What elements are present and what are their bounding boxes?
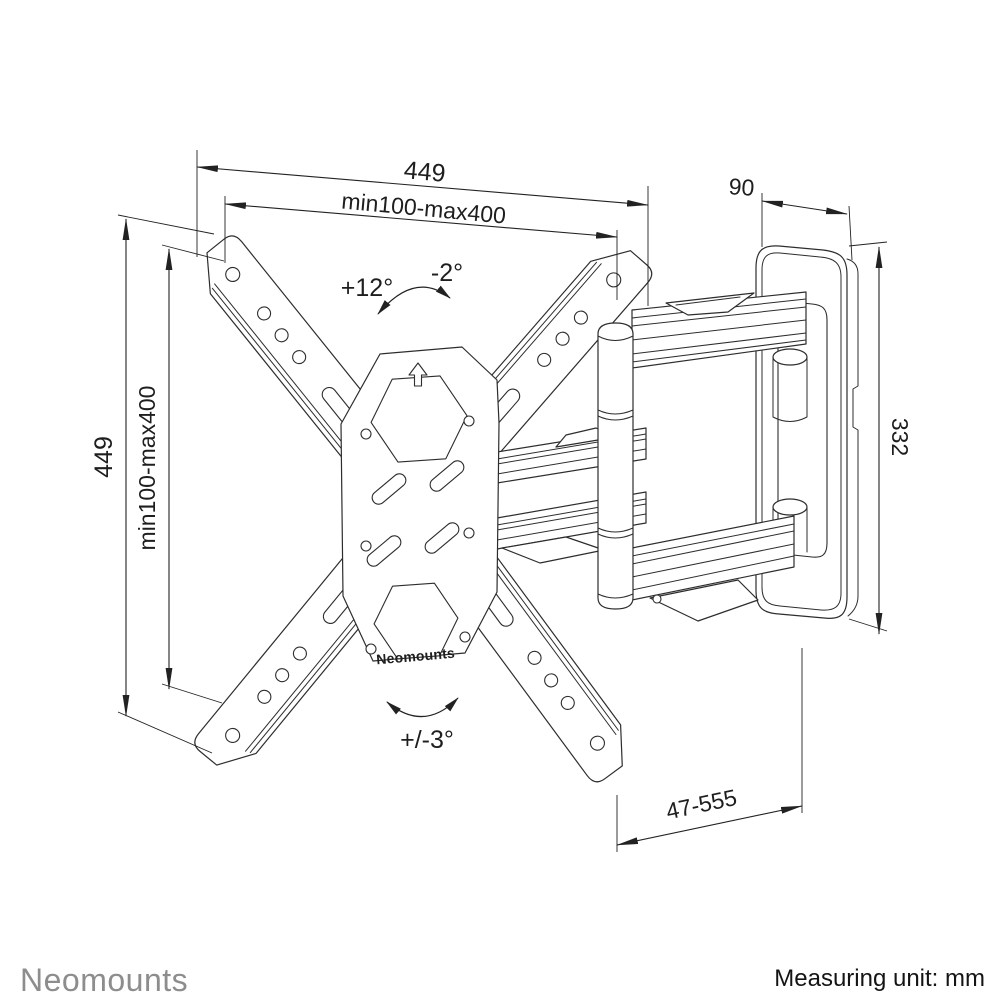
dimension-top-vesa: min100-max400 — [225, 187, 617, 300]
dimension-label-extension-range: 47-555 — [664, 784, 739, 824]
dimension-label-wall-plate-depth: 90 — [728, 173, 755, 201]
dimension-wall-plate-height: 332 — [849, 242, 913, 634]
dimension-label-left-height: 449 — [90, 436, 118, 478]
wall-mount-technical-drawing: Neomounts 449 — [0, 0, 1004, 1004]
hinge-column — [598, 323, 633, 609]
measuring-unit-note: Measuring unit: mm — [774, 965, 985, 992]
dimension-label-wall-plate-height: 332 — [887, 418, 913, 456]
dimension-label-left-vesa: min100-max400 — [134, 386, 160, 551]
vesa-center-plate: Neomounts — [341, 347, 499, 667]
brand-logo: Neomounts — [20, 962, 188, 998]
tilt-angle-callout: +12° -2° — [341, 259, 463, 314]
wall-plate-depth-edge — [847, 259, 858, 616]
angle-label-tilt-down: -2° — [431, 259, 463, 287]
angle-label-swivel: +/-3° — [400, 726, 454, 754]
dimension-left-vesa: min100-max400 — [134, 245, 224, 703]
technical-drawing-page: Neomounts 449 — [0, 0, 1004, 1004]
footer: Neomounts Measuring unit: mm — [20, 962, 985, 998]
dimension-label-top-vesa: min100-max400 — [340, 187, 507, 228]
swivel-angle-callout: +/-3° — [387, 698, 458, 754]
angle-label-tilt-up: +12° — [341, 274, 393, 302]
dimension-label-top-width: 449 — [403, 156, 447, 188]
dimension-extension-range: 47-555 — [617, 648, 802, 852]
